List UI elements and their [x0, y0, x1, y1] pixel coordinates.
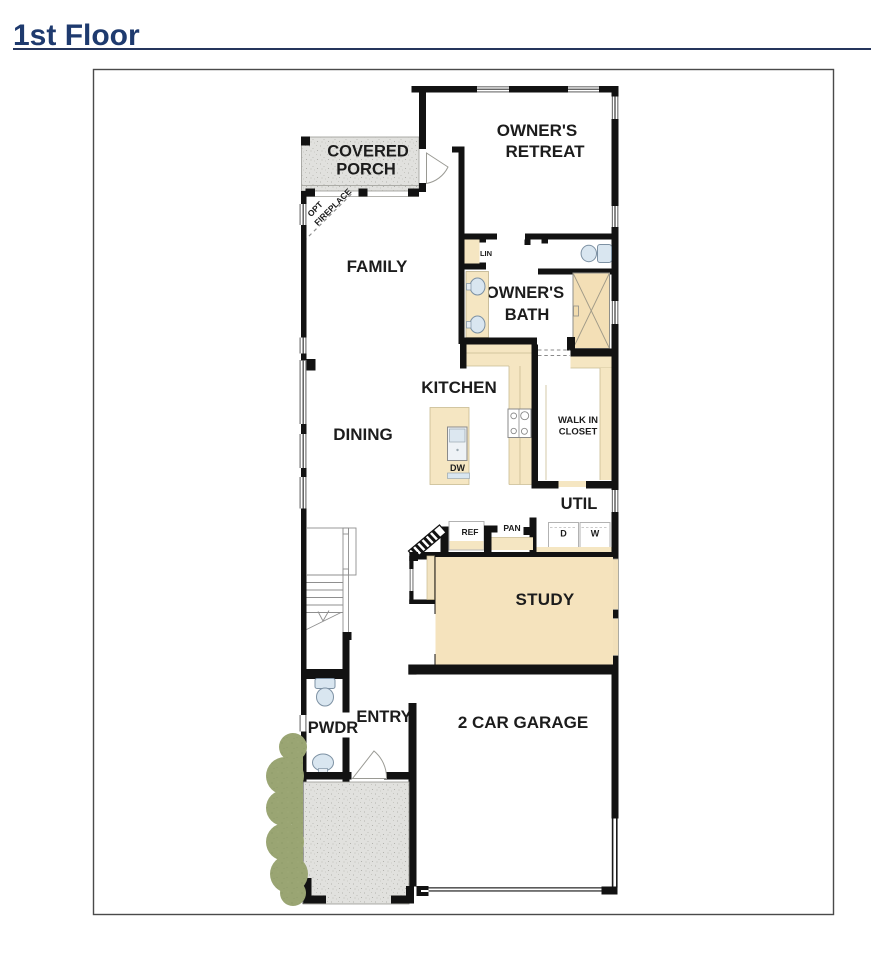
svg-text:STUDY: STUDY — [515, 590, 574, 609]
svg-text:W: W — [591, 529, 600, 539]
svg-text:COVERED: COVERED — [327, 143, 409, 161]
svg-text:WALK IN: WALK IN — [558, 415, 598, 426]
svg-text:REF: REF — [462, 527, 479, 537]
svg-text:UTIL: UTIL — [561, 495, 598, 513]
svg-text:ENTRY: ENTRY — [356, 708, 411, 726]
svg-text:KITCHEN: KITCHEN — [421, 378, 497, 397]
svg-text:FAMILY: FAMILY — [347, 257, 408, 276]
svg-text:RETREAT: RETREAT — [505, 142, 585, 161]
svg-text:LIN: LIN — [480, 249, 492, 258]
svg-text:OWNER'S: OWNER'S — [486, 284, 564, 302]
svg-text:OWNER'S: OWNER'S — [497, 121, 578, 140]
svg-text:2 CAR GARAGE: 2 CAR GARAGE — [458, 713, 588, 732]
svg-text:D: D — [560, 529, 567, 539]
svg-text:PAN: PAN — [503, 523, 520, 533]
svg-text:CLOSET: CLOSET — [559, 427, 598, 438]
svg-text:PORCH: PORCH — [336, 161, 396, 179]
svg-text:PWDR: PWDR — [308, 719, 358, 737]
svg-text:DW: DW — [450, 463, 465, 473]
svg-text:DINING: DINING — [333, 425, 393, 444]
svg-text:BATH: BATH — [505, 306, 550, 324]
